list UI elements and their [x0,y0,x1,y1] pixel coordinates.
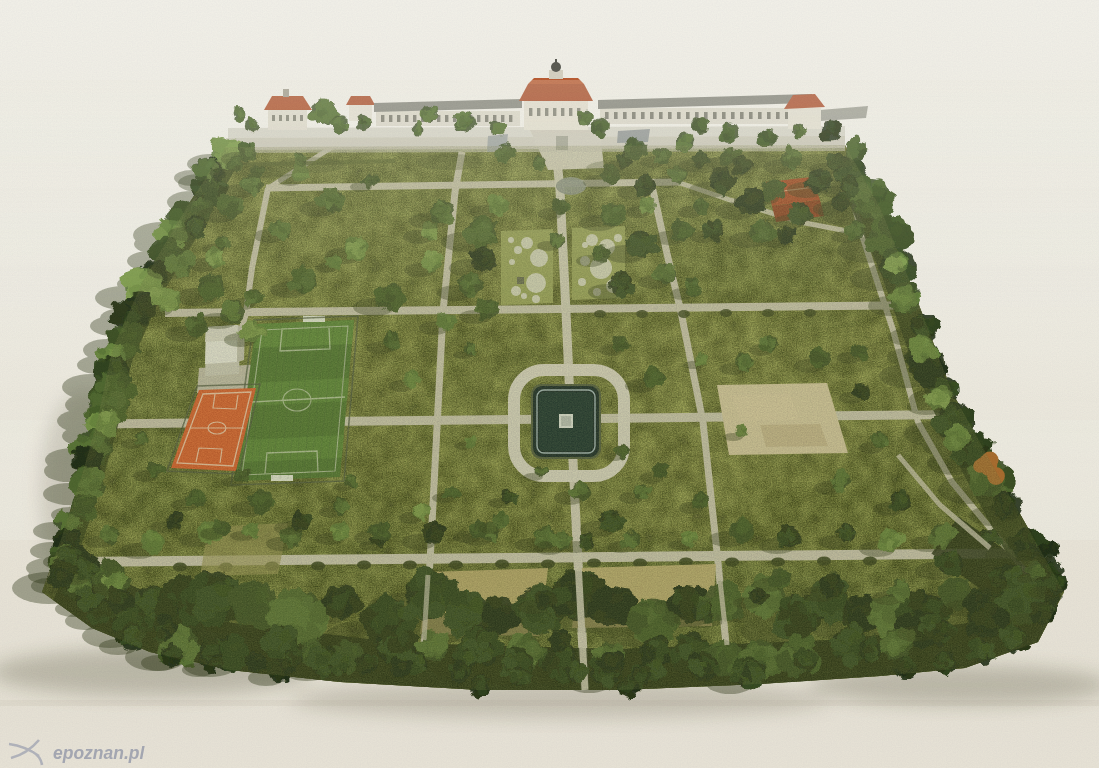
svg-text:epoznan.pl: epoznan.pl [53,743,146,763]
